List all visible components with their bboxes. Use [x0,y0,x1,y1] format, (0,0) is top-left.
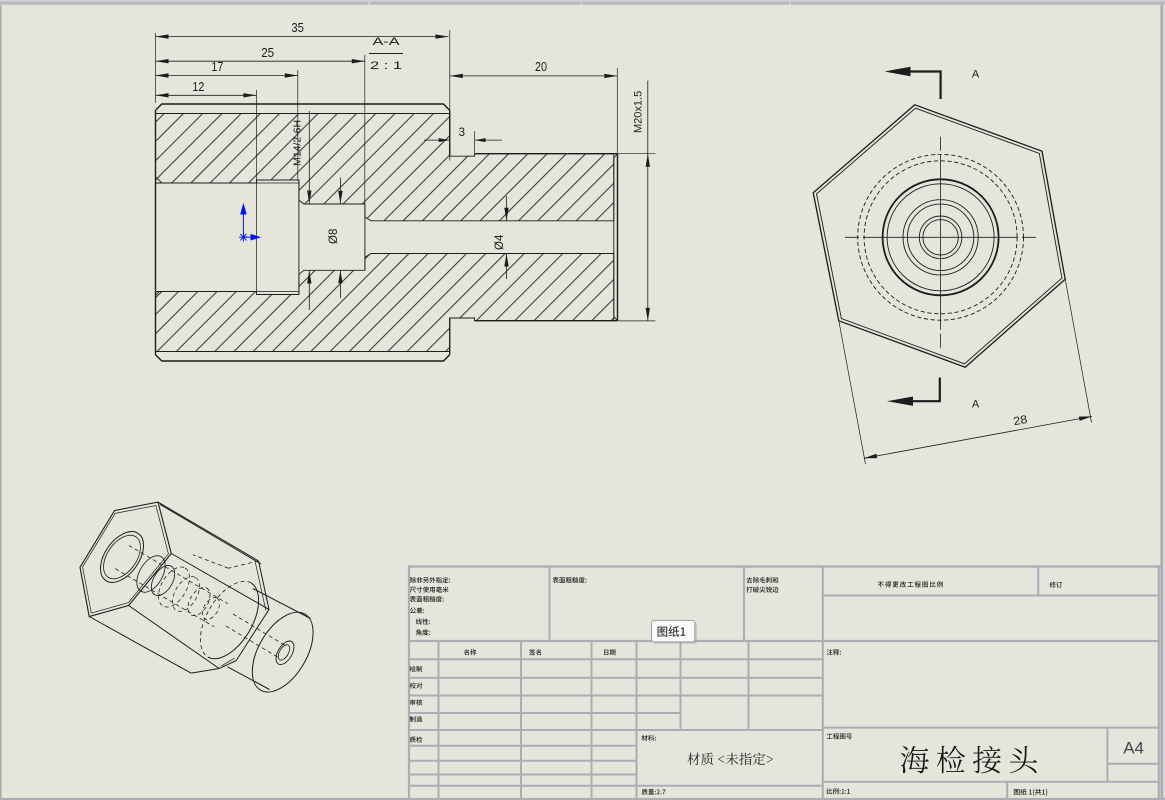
svg-text:Ø4: Ø4 [494,234,506,250]
svg-text:A4: A4 [1123,738,1144,757]
svg-text:2 : 1: 2 : 1 [370,60,402,72]
svg-text:M20x1.5: M20x1.5 [633,91,645,133]
svg-text:28: 28 [1012,414,1028,428]
svg-text:A: A [972,69,980,81]
svg-text:3: 3 [459,127,465,139]
svg-text:35: 35 [291,21,304,35]
svg-text:A-A: A-A [373,36,401,48]
svg-text:25: 25 [261,46,274,60]
svg-text:Ø8: Ø8 [328,229,340,244]
svg-text:M14/2-6H: M14/2-6H [292,120,304,166]
svg-text:12: 12 [192,80,204,94]
svg-text:A: A [972,399,980,411]
svg-text:20: 20 [535,60,547,74]
svg-text:17: 17 [211,60,223,74]
